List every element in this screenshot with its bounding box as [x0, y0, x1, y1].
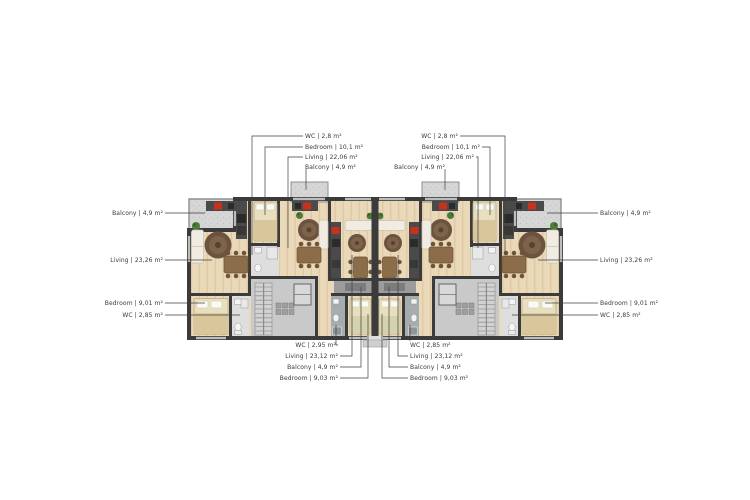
label-top-right-bedroom: Bedroom | 10,1 m²	[422, 144, 480, 151]
label-bottom-right-bedroom: Bedroom | 9,03 m²	[410, 375, 468, 382]
building	[187, 182, 563, 347]
label-top-left-living: Living | 22,06 m²	[305, 154, 358, 161]
label-top-left-bedroom: Bedroom | 10,1 m²	[305, 144, 363, 151]
label-top-left-wc: WC | 2,8 m²	[305, 133, 342, 140]
entrance-door-gap	[367, 336, 383, 340]
entrance-porch	[363, 340, 387, 347]
label-bottom-left-wc: WC | 2,95 m²	[295, 342, 336, 349]
label-top-right-balcony: Balcony | 4,9 m²	[394, 164, 445, 171]
label-bottom-left-balcony: Balcony | 4,9 m²	[287, 364, 338, 371]
floor-plan-page: WC | 2,8 m² Bedroom | 10,1 m² Living | 2…	[0, 0, 750, 500]
label-bottom-right-balcony: Balcony | 4,9 m²	[410, 364, 461, 371]
label-right-bedroom: Bedroom | 9,01 m²	[600, 300, 658, 307]
right-building-half	[375, 182, 563, 340]
label-bottom-right-living: Living | 23,12 m²	[410, 353, 463, 360]
label-bottom-right-wc: WC | 2,85 m²	[410, 342, 451, 349]
label-top-right-living: Living | 22,06 m²	[421, 154, 474, 161]
floor-plan-drawing	[0, 0, 750, 500]
label-left-wc: WC | 2,85 m²	[122, 312, 163, 319]
label-left-living: Living | 23,26 m²	[110, 257, 163, 264]
label-right-wc: WC | 2,85 m²	[600, 312, 641, 319]
label-bottom-left-living: Living | 23,12 m²	[285, 353, 338, 360]
label-right-balcony: Balcony | 4,9 m²	[600, 210, 651, 217]
label-bottom-left-bedroom: Bedroom | 9,03 m²	[280, 375, 338, 382]
left-building-half	[187, 182, 375, 340]
label-left-bedroom: Bedroom | 9,01 m²	[105, 300, 163, 307]
label-left-balcony: Balcony | 4,9 m²	[112, 210, 163, 217]
party-wall	[372, 197, 379, 340]
label-top-right-wc: WC | 2,8 m²	[421, 133, 458, 140]
label-right-living: Living | 23,26 m²	[600, 257, 653, 264]
label-top-left-balcony: Balcony | 4,9 m²	[305, 164, 356, 171]
